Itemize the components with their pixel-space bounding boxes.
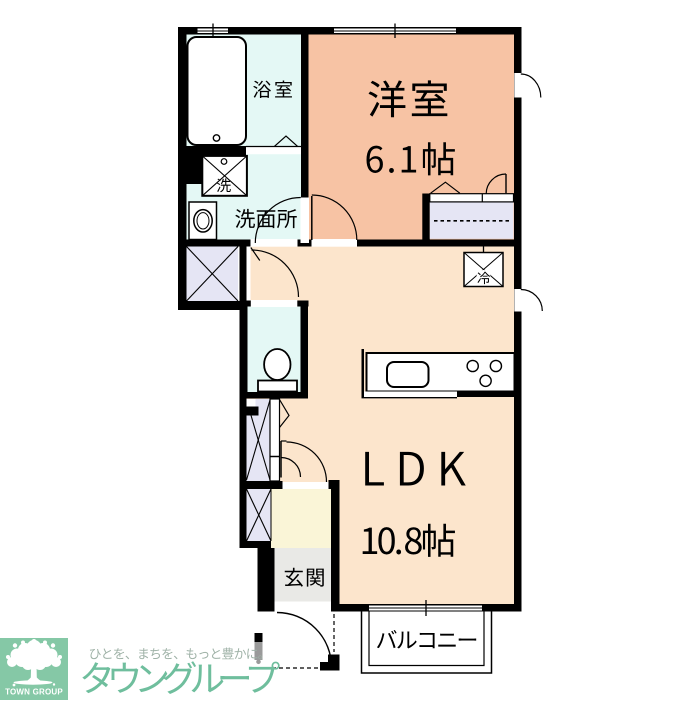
svg-text:TOWN GROUP: TOWN GROUP (5, 688, 63, 697)
